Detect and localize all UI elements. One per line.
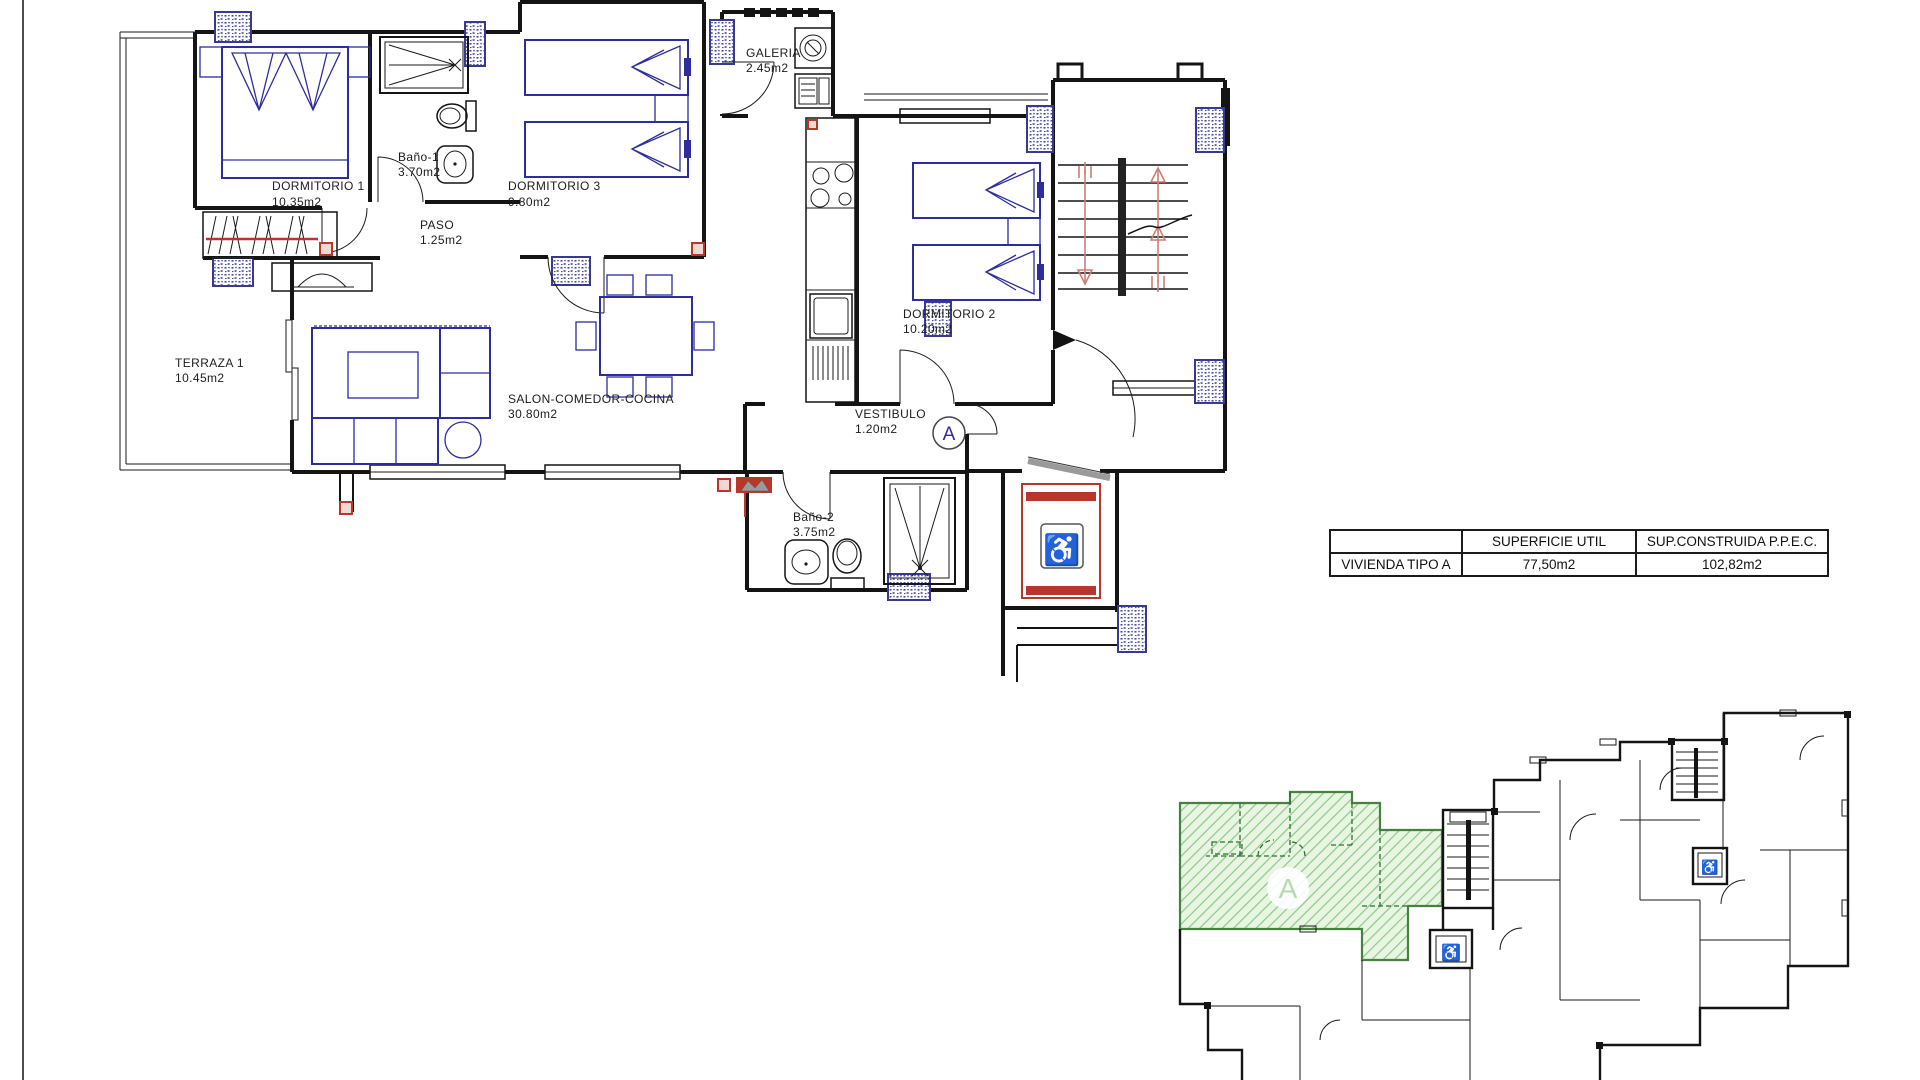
label-dormitorio-3-area: 9.80m2: [508, 195, 550, 209]
surface-area-table: SUPERFICIE UTIL SUP.CONSTRUIDA P.P.E.C. …: [1329, 529, 1829, 577]
door-swings: [286, 62, 1135, 519]
sofa-set: [312, 326, 490, 464]
site-elevator-2: ♿: [1693, 848, 1727, 884]
site-wheelchair-icon-1: ♿: [1441, 943, 1461, 962]
cell-vivienda-tipo: VIVIENDA TIPO A: [1330, 553, 1462, 576]
dining-table: [576, 275, 714, 397]
label-terraza-1-area: 10.45m2: [175, 371, 225, 385]
label-bano-2-area: 3.75m2: [793, 525, 835, 539]
site-elevator-1: ♿: [1430, 930, 1472, 968]
entrance-door-leaf: [1053, 330, 1076, 350]
label-dormitorio-2-area: 10.20m2: [903, 322, 953, 336]
label-salon: SALON-COMEDOR-COCINA: [508, 392, 674, 406]
bed-dormitorio-1: [200, 47, 370, 178]
label-dormitorio-3: DORMITORIO 3: [508, 179, 601, 193]
highlighted-unit-a: [1180, 792, 1442, 960]
label-bano-2: Baño-2: [793, 510, 834, 524]
site-stair-core-1: [1443, 810, 1493, 908]
label-paso-area: 1.25m2: [420, 233, 462, 247]
label-salon-area: 30.80m2: [508, 407, 558, 421]
wheelchair-icon: ♿: [1043, 532, 1080, 567]
sideboard: [272, 263, 372, 291]
header-unit-cell: [1330, 530, 1462, 553]
label-vestibulo: VESTIBULO: [855, 407, 926, 421]
walls: [195, 2, 1230, 682]
staircase: [1058, 158, 1192, 296]
label-paso: PASO: [420, 218, 454, 232]
label-dormitorio-2: DORMITORIO 2: [903, 307, 996, 321]
floorplan-sheet: ♿ DORMITORIO 1 10.35m2 Baño-1 3.70m2 DOR…: [0, 0, 1920, 1080]
main-floor-plan: ♿ DORMITORIO 1 10.35m2 Baño-1 3.70m2 DOR…: [120, 2, 1230, 682]
wardrobe: [203, 212, 337, 258]
header-sup-construida: SUP.CONSTRUIDA P.P.E.C.: [1636, 530, 1828, 553]
site-unit-badge-letter: A: [1279, 873, 1298, 904]
label-galeria: GALERIA: [746, 46, 801, 60]
table-header-row: SUPERFICIE UTIL SUP.CONSTRUIDA P.P.E.C.: [1330, 530, 1828, 553]
header-superficie-util: SUPERFICIE UTIL: [1462, 530, 1636, 553]
site-wheelchair-icon-2: ♿: [1701, 859, 1718, 876]
unit-badge: A: [933, 417, 965, 449]
kitchen-counter: [806, 118, 855, 402]
label-bano-1-area: 3.70m2: [398, 165, 440, 179]
cell-sup-construida: 102,82m2: [1636, 553, 1828, 576]
label-bano-1: Baño-1: [398, 150, 439, 164]
label-terraza-1: TERRAZA 1: [175, 356, 244, 370]
label-dormitorio-1-area: 10.35m2: [272, 195, 322, 209]
beds-dormitorio-3: [525, 40, 691, 177]
beds-dormitorio-2: [913, 163, 1044, 300]
table-data-row: VIVIENDA TIPO A 77,50m2 102,82m2: [1330, 553, 1828, 576]
label-galeria-area: 2.45m2: [746, 61, 788, 75]
elevator: ♿: [1022, 457, 1110, 598]
unit-badge-letter: A: [943, 424, 956, 445]
terrace-rails: [120, 32, 293, 470]
label-dormitorio-1: DORMITORIO 1: [272, 179, 365, 193]
label-vestibulo-area: 1.20m2: [855, 422, 897, 436]
site-key-plan: A ♿: [1180, 710, 1851, 1080]
cell-superficie-util: 77,50m2: [1462, 553, 1636, 576]
galeria-appliances: [795, 28, 832, 108]
site-stair-core-2: [1672, 740, 1724, 800]
